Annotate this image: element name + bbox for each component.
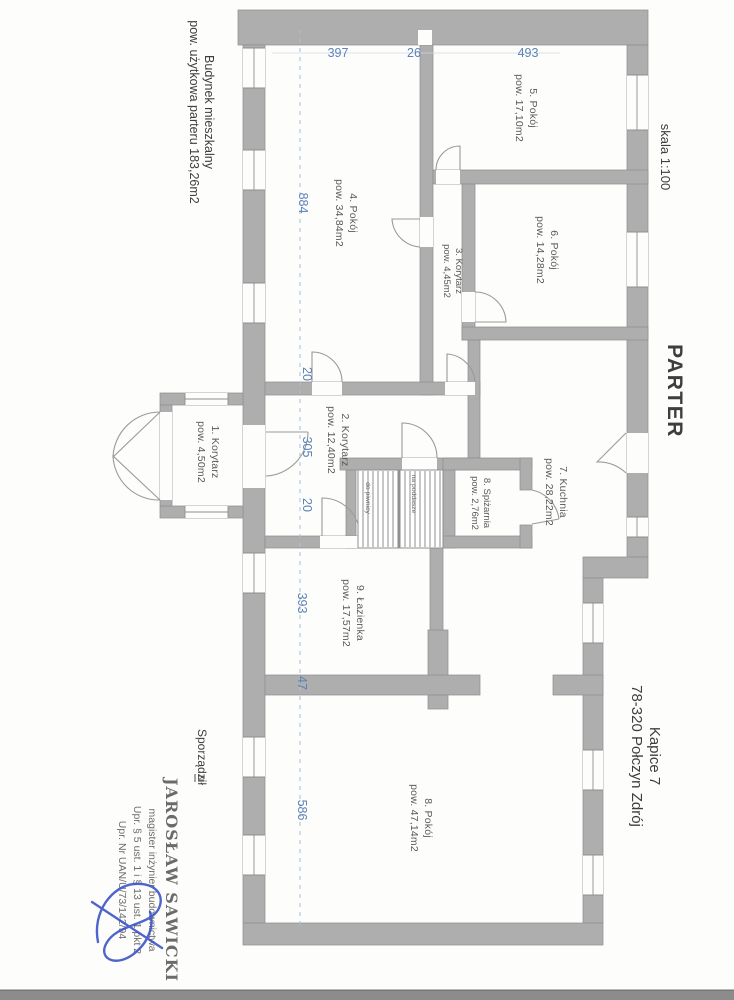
window (243, 835, 265, 875)
window (243, 283, 265, 323)
room-label-5-pokoj: 5. Pokój pow. 17,10m2 (513, 74, 539, 142)
window (627, 75, 648, 130)
svg-text:skala 1:100: skala 1:100 (658, 124, 673, 191)
room-label-4-pokoj: 4. Pokój pow. 34,84m2 (333, 179, 359, 247)
room-label-9-lazienka: 9. Łazienka pow. 17,57m2 (340, 579, 366, 647)
room-area: pow. 14,28m2 (534, 216, 546, 284)
stamp-name-line: JAROSŁAW SAWICKI (162, 776, 181, 982)
room-label-2-korytarz: 2. Korytarz pow. 12,40m2 (325, 406, 351, 474)
room-label-8-spizarnia: 8. Spiżarnia pow. 2,76m2 (469, 476, 492, 530)
top-dimension-2: 493 (518, 46, 539, 60)
door-opening (627, 433, 648, 473)
door-opening (462, 292, 475, 322)
top-dimension-0: 397 (328, 46, 349, 60)
door-arc (113, 456, 160, 500)
room-label-1-korytarz: 1. Korytarz pow. 4,50m2 (195, 421, 221, 483)
wall-room6-bottom (462, 327, 648, 340)
room-name: 1. Korytarz (209, 426, 221, 479)
door-arc (312, 352, 342, 382)
room-name: 3. Korytarz (453, 248, 464, 294)
svg-text:do piwnicy: do piwnicy (364, 482, 371, 514)
surveyor-stamp: JAROSŁAW SAWICKI magister inżynier budow… (116, 776, 181, 982)
door-opening (312, 382, 342, 395)
door-arc (392, 219, 420, 247)
svg-text:na poddasze: na poddasze (410, 475, 417, 514)
floor-plan-scan: do piwnicy na poddasze 397 26 493 884 20… (0, 0, 734, 1000)
room-area: pow. 17,10m2 (513, 74, 525, 142)
stair-flight-attic (400, 470, 443, 548)
side-dimension-4: 393 (295, 593, 309, 614)
room-name: 5. Pokój (527, 88, 539, 128)
room-area: pow. 17,57m2 (340, 579, 352, 647)
side-dimension-1: 20 (300, 367, 314, 381)
door-opening (243, 425, 265, 488)
room-name: 4. Pokój (347, 193, 359, 233)
room-label-7-kuchnia: 7. Kuchnia pow. 28,22m2 (543, 458, 569, 526)
room-name: 8. Pokój (422, 798, 434, 838)
building-label: Budynek mieszkalny pow. użytkowa parteru… (187, 20, 216, 203)
side-dimension-3: 20 (300, 498, 314, 512)
window (583, 855, 603, 895)
window (243, 553, 265, 593)
window (185, 506, 228, 518)
room-name: 7. Kuchnia (557, 466, 569, 518)
room-area: pow. 4,50m2 (195, 421, 207, 483)
wall-chimney-stub-up (428, 630, 448, 675)
scan-edge-line (0, 990, 734, 992)
wall-room8-top-right (553, 675, 603, 695)
room-area: pow. 28,22m2 (543, 458, 555, 526)
room-name: 8. Spiżarnia (481, 478, 492, 529)
floor-title: PARTER (663, 344, 686, 438)
stairs-attic-label: na poddasze (410, 475, 417, 514)
wall-chimney-stub-down (428, 695, 448, 709)
door-opening (436, 170, 460, 184)
scan-edge-band (0, 991, 734, 1000)
window (243, 48, 265, 88)
door-arc (402, 423, 437, 458)
window (185, 393, 228, 405)
door-arc (475, 292, 506, 322)
outer-wall-step (583, 557, 648, 578)
pantry-wall-right-a (520, 458, 532, 490)
room-area: pow. 12,40m2 (325, 406, 337, 474)
window (243, 737, 265, 777)
svg-text:PARTER: PARTER (663, 344, 686, 438)
room-area: pow. 4,45m2 (441, 244, 452, 298)
door-opening (160, 412, 172, 500)
room-area: pow. 2,76m2 (469, 476, 480, 530)
window (583, 750, 603, 790)
room-area: pow. 34,84m2 (333, 179, 345, 247)
stairs-basement-label: do piwnicy (364, 482, 371, 514)
side-dimension-6: 586 (295, 800, 309, 821)
window (627, 517, 648, 537)
room-name: 6. Pokój (548, 230, 560, 270)
building-label-line2: pow. użytkowa parteru 183,26m2 (187, 20, 201, 203)
side-dimension-2: 305 (300, 437, 314, 458)
address-line2: 78-320 Połczyn Zdrój (628, 685, 645, 827)
wall-room5-bottom (433, 170, 648, 184)
door-arc (597, 433, 626, 473)
wall-kitchen-left (468, 340, 480, 458)
door-opening (320, 536, 360, 548)
outer-wall-bottom (243, 923, 603, 945)
room-name: 9. Łazienka (354, 585, 366, 641)
room-label-6-pokoj: 6. Pokój pow. 14,28m2 (534, 216, 560, 284)
door-arc (113, 412, 160, 457)
window (583, 603, 603, 643)
floor-plan-svg: do piwnicy na poddasze 397 26 493 884 20… (0, 0, 734, 1000)
side-dimension-0: 884 (296, 193, 310, 214)
room-label-8-pokoj: 8. Pokój pow. 47,14m2 (408, 784, 434, 852)
door-opening (418, 30, 432, 45)
door-opening (420, 217, 433, 247)
window (627, 232, 648, 287)
window (243, 150, 265, 190)
room-area: pow. 47,14m2 (408, 784, 420, 852)
pantry-wall-top (443, 458, 532, 470)
room-label-3-korytarz: 3. Korytarz pow. 4,45m2 (441, 244, 464, 298)
address-block: Kapice 7 78-320 Połczyn Zdrój (628, 685, 663, 827)
north-mark: N (195, 774, 205, 782)
scale-label: skala 1:100 (658, 124, 673, 191)
door-opening (445, 382, 475, 395)
door-arc (436, 146, 460, 170)
address-line1: Kapice 7 (646, 727, 663, 785)
room-name: 2. Korytarz (339, 414, 351, 467)
building-label-line1: Budynek mieszkalny (202, 55, 216, 170)
stamp-title-line: magister inżynier budownictwa (146, 809, 158, 952)
pantry-wall-right-b (520, 525, 532, 548)
top-dimension-1: 26 (407, 46, 421, 60)
svg-text:N: N (196, 775, 205, 781)
side-dimension-5: 47 (295, 676, 309, 690)
pantry-wall-bottom (443, 536, 532, 548)
door-opening (402, 458, 437, 470)
